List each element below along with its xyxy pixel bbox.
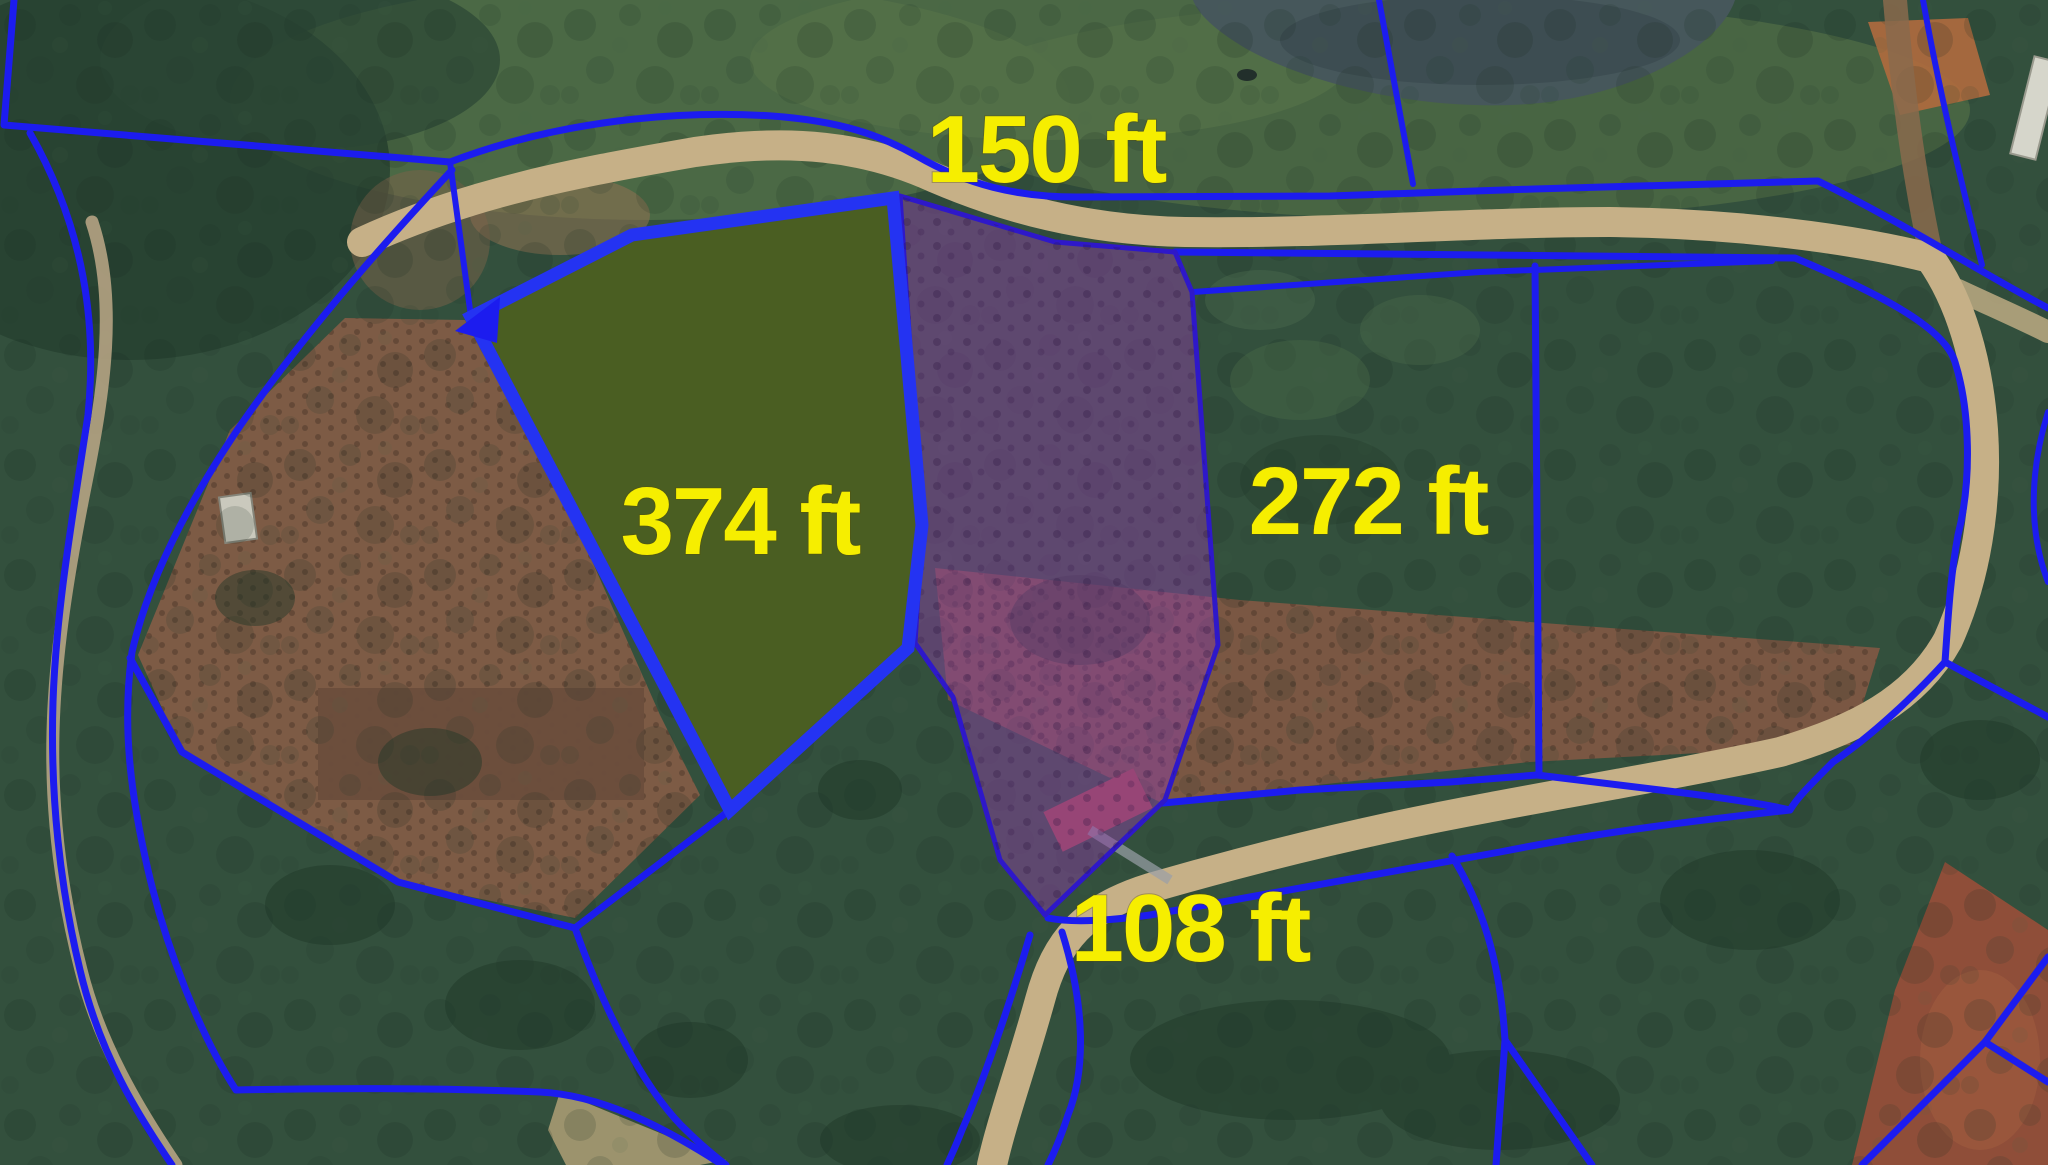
label-west-374ft: 374 ft [621, 468, 861, 575]
label-north-150ft: 150 ft [927, 96, 1167, 203]
boundary-east-lot-divider [1535, 266, 1539, 775]
label-south-108ft: 108 ft [1071, 875, 1311, 982]
label-east-272ft: 272 ft [1249, 448, 1489, 555]
satellite-parcel-map: 150 ft 374 ft 272 ft 108 ft [0, 0, 2048, 1165]
map-canvas: 150 ft 374 ft 272 ft 108 ft [0, 0, 2048, 1165]
